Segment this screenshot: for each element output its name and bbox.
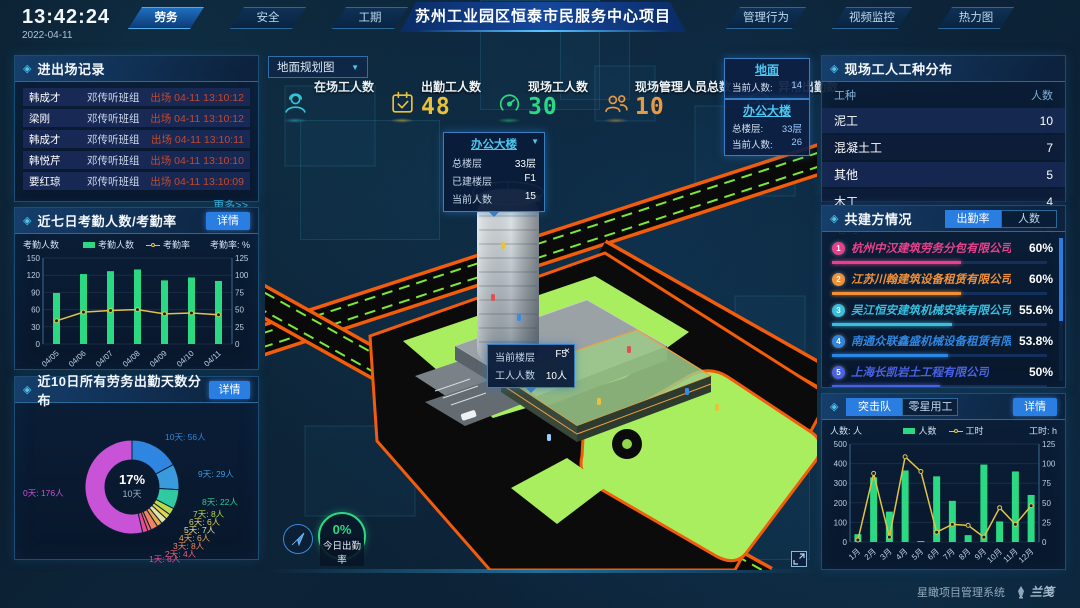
fullscreen-icon[interactable] — [791, 551, 807, 567]
chevron-down-icon[interactable]: ▼ — [531, 137, 539, 146]
tooltip-label: 当前楼层 — [495, 349, 535, 364]
svg-text:100: 100 — [1042, 460, 1056, 469]
page-title: 苏州工业园区恒泰市民服务中心项目 — [400, 2, 686, 32]
panel-title: 共建方情况 — [844, 209, 912, 228]
svg-text:200: 200 — [834, 499, 848, 508]
date-text: 2022-04-11 — [22, 30, 110, 41]
header-left-tabs: 劳务安全工期 — [128, 7, 408, 29]
card-value: 14 — [791, 80, 802, 94]
partners-list: 1杭州中汉建筑劳务分包有限公司60%2江苏川翰建筑设备租赁有限公司60%3吴江恒… — [822, 232, 1065, 387]
partners-tabs: 出勤率人数 — [945, 210, 1057, 228]
svg-text:50: 50 — [235, 306, 244, 315]
svg-text:75: 75 — [235, 288, 244, 297]
line-legend-swatch — [949, 431, 963, 432]
brand-logo: 兰笺 — [1015, 583, 1054, 600]
building-tooltip-title[interactable]: 办公大楼 — [452, 136, 536, 152]
detail-button[interactable]: 详情 — [1013, 398, 1057, 416]
svg-text:12月: 12月 — [1017, 547, 1036, 565]
attendance-donut-chart: 10天: 56人9天: 29人8天: 22人7天: 8人6天: 6人5天: 7人… — [15, 403, 258, 561]
tooltip-value: F1 — [524, 173, 536, 188]
right-axis-caption: 工时: h — [1029, 424, 1057, 437]
svg-text:04/05: 04/05 — [40, 348, 61, 368]
entry-exit-row: 要红琼邓传听班组出场 04-11 13:10:09 — [23, 172, 250, 190]
left-axis-caption: 考勤人数 — [23, 238, 59, 251]
entry-exit-row: 韩悦芹邓传听班组出场 04-11 13:10:10 — [23, 151, 250, 169]
entry-exit-rows: 韩成才邓传听班组出场 04-11 13:10:12梁刚邓传听班组出场 04-11… — [15, 82, 258, 195]
ground-card: 地面 当前人数:14 — [724, 58, 810, 99]
svg-text:125: 125 — [1042, 440, 1056, 449]
tooltip-value: 15 — [525, 191, 536, 206]
navigation-arrow-icon — [289, 530, 307, 548]
svg-text:04/09: 04/09 — [148, 348, 169, 368]
pen-logo-icon — [1015, 585, 1027, 599]
diamond-icon: ◈ — [23, 383, 31, 396]
card-label: 总楼层: — [732, 121, 763, 135]
tooltip-label: 已建楼层 — [452, 173, 492, 188]
svg-text:75: 75 — [1042, 479, 1051, 488]
diamond-icon: ◈ — [830, 62, 838, 75]
svg-text:120: 120 — [27, 271, 41, 280]
attendance-distribution-panel: ◈ 近10日所有劳务出勤天数分布 详情 10天: 56人9天: 29人8天: 2… — [14, 376, 259, 560]
svg-text:0: 0 — [36, 340, 41, 349]
header: 13:42:24 2022-04-11 劳务安全工期 苏州工业园区恒泰市民服务中… — [0, 0, 1080, 44]
diamond-icon: ◈ — [830, 212, 838, 225]
weekly-attendance-panel: ◈ 近七日考勤人数/考勤率 详情 考勤人数 考勤人数 考勤率 考勤率: % 00… — [14, 207, 259, 370]
building-tooltip: 办公大楼 ▼ 总楼层33层 已建楼层F1 当前人数15 — [443, 132, 545, 212]
svg-text:125: 125 — [235, 254, 249, 263]
rate-value: 0% — [320, 522, 364, 537]
svg-text:400: 400 — [834, 460, 848, 469]
squad-panel: ◈ 突击队零星用工 详情 人数: 人 人数 工时 工时: h 001002520… — [821, 393, 1066, 570]
header-tab-工期[interactable]: 工期 — [332, 7, 408, 29]
partners-panel: ◈ 共建方情况 出勤率人数 1杭州中汉建筑劳务分包有限公司60%2江苏川翰建筑设… — [821, 205, 1066, 388]
svg-text:100: 100 — [834, 518, 848, 527]
svg-text:1月: 1月 — [847, 547, 862, 562]
svg-text:100: 100 — [235, 271, 249, 280]
today-attendance-rate: 0% 今日出勤率 — [318, 512, 366, 560]
worker-types-panel: ◈ 现场工人工种分布 工种 人数 泥工10混凝土工7其他5木工4塔司4 — [821, 55, 1066, 202]
svg-text:30: 30 — [31, 323, 40, 332]
weekly-attendance-chart: 0030256050907512010015012504/0504/0604/0… — [17, 252, 256, 368]
tooltip-label: 总楼层 — [452, 155, 482, 170]
donut-label-8天: 8天: 22人 — [202, 496, 238, 508]
donut-label-10天: 10天: 56人 — [165, 431, 206, 443]
svg-text:11月: 11月 — [1002, 547, 1020, 565]
entry-exit-row: 韩成才邓传听班组出场 04-11 13:10:12 — [23, 88, 250, 106]
svg-text:5月: 5月 — [910, 547, 925, 562]
detail-button[interactable]: 详情 — [206, 212, 250, 230]
svg-text:8月: 8月 — [957, 547, 972, 562]
squad-tab-零星用工[interactable]: 零星用工 — [902, 398, 958, 416]
dashboard-screen: 13:42:24 2022-04-11 劳务安全工期 苏州工业园区恒泰市民服务中… — [0, 0, 1080, 608]
diamond-icon: ◈ — [830, 400, 838, 413]
svg-text:04/07: 04/07 — [94, 348, 115, 368]
svg-text:6月: 6月 — [926, 547, 941, 562]
partner-row: 4南通众联鑫盛机械设备租赁有限公司53.8% — [832, 330, 1053, 360]
time-text: 13:42:24 — [22, 6, 110, 29]
rate-label: 今日出勤率 — [320, 538, 364, 566]
svg-text:25: 25 — [1042, 518, 1051, 527]
bar-legend-swatch — [903, 428, 915, 434]
detail-button[interactable]: 详情 — [209, 381, 250, 399]
svg-text:150: 150 — [27, 254, 41, 263]
office-building-card: 办公大楼 总楼层:33层 当前人数:26 — [724, 99, 810, 156]
footer: 星瞰项目管理系统 兰笺 — [917, 583, 1054, 600]
header-tab-管理行为[interactable]: 管理行为 — [726, 7, 806, 29]
svg-text:0: 0 — [235, 340, 240, 349]
panel-title: 现场工人工种分布 — [844, 59, 952, 78]
header-tab-安全[interactable]: 安全 — [230, 7, 306, 29]
svg-text:04/08: 04/08 — [121, 348, 142, 368]
system-name: 星瞰项目管理系统 — [917, 584, 1005, 600]
svg-text:90: 90 — [31, 288, 40, 297]
left-axis-caption: 人数: 人 — [830, 424, 862, 437]
bar-legend-swatch — [83, 242, 95, 248]
partners-tab-人数[interactable]: 人数 — [1001, 210, 1057, 228]
clock: 13:42:24 2022-04-11 — [22, 6, 110, 41]
partner-row: 3吴江恒安建筑机械安装有限公司55.6% — [832, 299, 1053, 329]
right-axis-caption: 考勤率: % — [210, 238, 250, 251]
worker-type-row: 混凝土工7 — [822, 135, 1065, 160]
entry-exit-panel: ◈ 进出场记录 韩成才邓传听班组出场 04-11 13:10:12梁刚邓传听班组… — [14, 55, 259, 202]
partners-tab-出勤率[interactable]: 出勤率 — [945, 210, 1001, 228]
squad-tab-突击队[interactable]: 突击队 — [846, 398, 902, 416]
card-label: 当前人数: — [732, 137, 773, 151]
donut-label-9天: 9天: 29人 — [198, 468, 234, 480]
diamond-icon: ◈ — [23, 62, 31, 75]
floor-tooltip: × 当前楼层F5 工人人数10人 — [487, 344, 575, 388]
svg-text:25: 25 — [235, 323, 244, 332]
svg-text:60: 60 — [31, 306, 40, 315]
svg-text:4月: 4月 — [894, 547, 909, 562]
squad-tabs: 突击队零星用工 — [846, 398, 958, 416]
svg-text:2月: 2月 — [863, 547, 878, 562]
card-label: 当前人数: — [732, 80, 773, 94]
line-legend-swatch — [146, 245, 160, 246]
compass-control[interactable] — [283, 524, 313, 554]
card-value: 26 — [791, 137, 802, 151]
worker-type-row: 泥工10 — [822, 108, 1065, 133]
close-icon[interactable]: × — [564, 346, 570, 357]
ground-card-title[interactable]: 地面 — [732, 61, 802, 78]
card-value: 33层 — [782, 121, 802, 135]
header-tab-视频监控[interactable]: 视频监控 — [832, 7, 912, 29]
header-tab-劳务[interactable]: 劳务 — [128, 7, 204, 29]
partner-row: 5上海长凯岩土工程有限公司50% — [832, 361, 1053, 387]
partner-row: 1杭州中汉建筑劳务分包有限公司60% — [832, 237, 1053, 267]
svg-text:04/11: 04/11 — [202, 348, 223, 368]
svg-text:7月: 7月 — [941, 547, 956, 562]
scrollbar[interactable] — [1059, 238, 1063, 381]
entry-exit-row: 韩成才邓传听班组出场 04-11 13:10:11 — [23, 130, 250, 148]
tooltip-label: 当前人数 — [452, 191, 492, 206]
svg-text:04/10: 04/10 — [175, 348, 196, 368]
svg-text:04/06: 04/06 — [67, 348, 88, 368]
svg-text:50: 50 — [1042, 499, 1051, 508]
tooltip-value: 33层 — [515, 155, 536, 170]
donut-label-0天: 0天: 176人 — [23, 487, 64, 499]
brand-logo-text: 兰笺 — [1030, 583, 1054, 600]
partner-row: 2江苏川翰建筑设备租赁有限公司60% — [832, 268, 1053, 298]
header-tab-热力图[interactable]: 热力图 — [938, 7, 1014, 29]
worker-type-row: 其他5 — [822, 162, 1065, 187]
svg-text:300: 300 — [834, 479, 848, 488]
header-right-tabs: 管理行为视频监控热力图 — [726, 7, 1014, 29]
entry-exit-row: 梁刚邓传听班组出场 04-11 13:10:12 — [23, 109, 250, 127]
chart-legend: 人数: 人 人数 工时 工时: h — [822, 422, 1065, 438]
svg-text:500: 500 — [834, 440, 848, 449]
donut-center-label: 17%10天 — [92, 472, 172, 500]
svg-text:0: 0 — [1042, 538, 1047, 547]
svg-text:10月: 10月 — [985, 547, 1004, 565]
column-header: 工种 — [834, 87, 856, 103]
tooltip-value: 10人 — [546, 367, 567, 382]
diamond-icon: ◈ — [23, 214, 31, 227]
squad-monthly-chart: 001002520050300754001005001251月2月3月4月5月6… — [824, 438, 1063, 566]
worker-types-header: 工种 人数 — [822, 82, 1065, 108]
svg-text:3月: 3月 — [878, 547, 893, 562]
office-card-title[interactable]: 办公大楼 — [732, 102, 802, 119]
tooltip-label: 工人人数 — [495, 367, 535, 382]
column-header: 人数 — [1031, 87, 1053, 103]
donut-label-1天: 1天: 6人 — [149, 553, 180, 565]
panel-title: 进出场记录 — [37, 59, 105, 78]
svg-text:0: 0 — [843, 538, 848, 547]
chart-legend: 考勤人数 考勤人数 考勤率 考勤率: % — [15, 236, 258, 252]
panel-title: 近七日考勤人数/考勤率 — [37, 211, 176, 230]
